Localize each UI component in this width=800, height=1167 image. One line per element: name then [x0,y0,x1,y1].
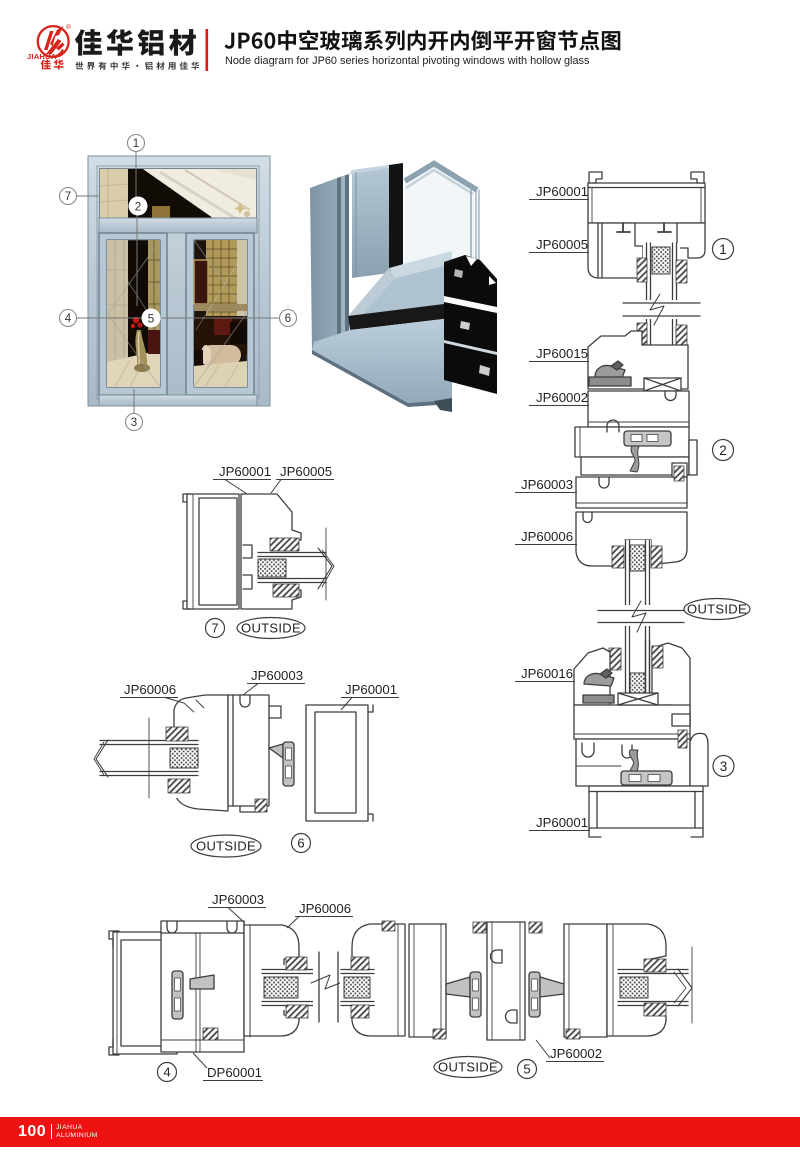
svg-text:JP60001: JP60001 [536,815,588,830]
svg-text:1: 1 [133,138,139,150]
svg-text:JP60003: JP60003 [212,892,264,907]
svg-text:OUTSIDE: OUTSIDE [196,839,256,854]
svg-text:DP60001: DP60001 [207,1065,262,1080]
svg-text:JP60006: JP60006 [124,682,176,697]
svg-text:5: 5 [148,312,155,326]
svg-text:JP60003: JP60003 [521,477,573,492]
svg-text:5: 5 [523,1062,530,1077]
svg-text:JP60006: JP60006 [521,529,573,544]
svg-text:JP60005: JP60005 [280,464,332,479]
svg-text:JP60001: JP60001 [536,184,588,199]
svg-text:JP60006: JP60006 [299,901,351,916]
svg-text:4: 4 [65,313,72,325]
svg-text:JP60016: JP60016 [521,666,573,681]
svg-text:JP60001: JP60001 [345,682,397,697]
svg-text:JP60002: JP60002 [536,390,588,405]
svg-text:JP60015: JP60015 [536,346,588,361]
svg-text:2: 2 [135,200,142,214]
svg-text:3: 3 [131,417,137,429]
svg-text:7: 7 [65,191,71,203]
svg-text:JP60001: JP60001 [219,464,271,479]
svg-text:7: 7 [211,621,218,636]
svg-text:1: 1 [719,242,727,257]
svg-text:4: 4 [163,1065,170,1080]
svg-text:JP60002: JP60002 [550,1046,602,1061]
svg-text:6: 6 [297,836,304,851]
svg-text:2: 2 [719,443,727,458]
svg-text:6: 6 [285,313,291,325]
svg-text:OUTSIDE: OUTSIDE [241,621,301,636]
svg-text:3: 3 [720,759,728,774]
svg-text:OUTSIDE: OUTSIDE [687,602,747,617]
svg-text:OUTSIDE: OUTSIDE [438,1060,498,1075]
svg-text:JP60003: JP60003 [251,668,303,683]
svg-text:JP60005: JP60005 [536,237,588,252]
